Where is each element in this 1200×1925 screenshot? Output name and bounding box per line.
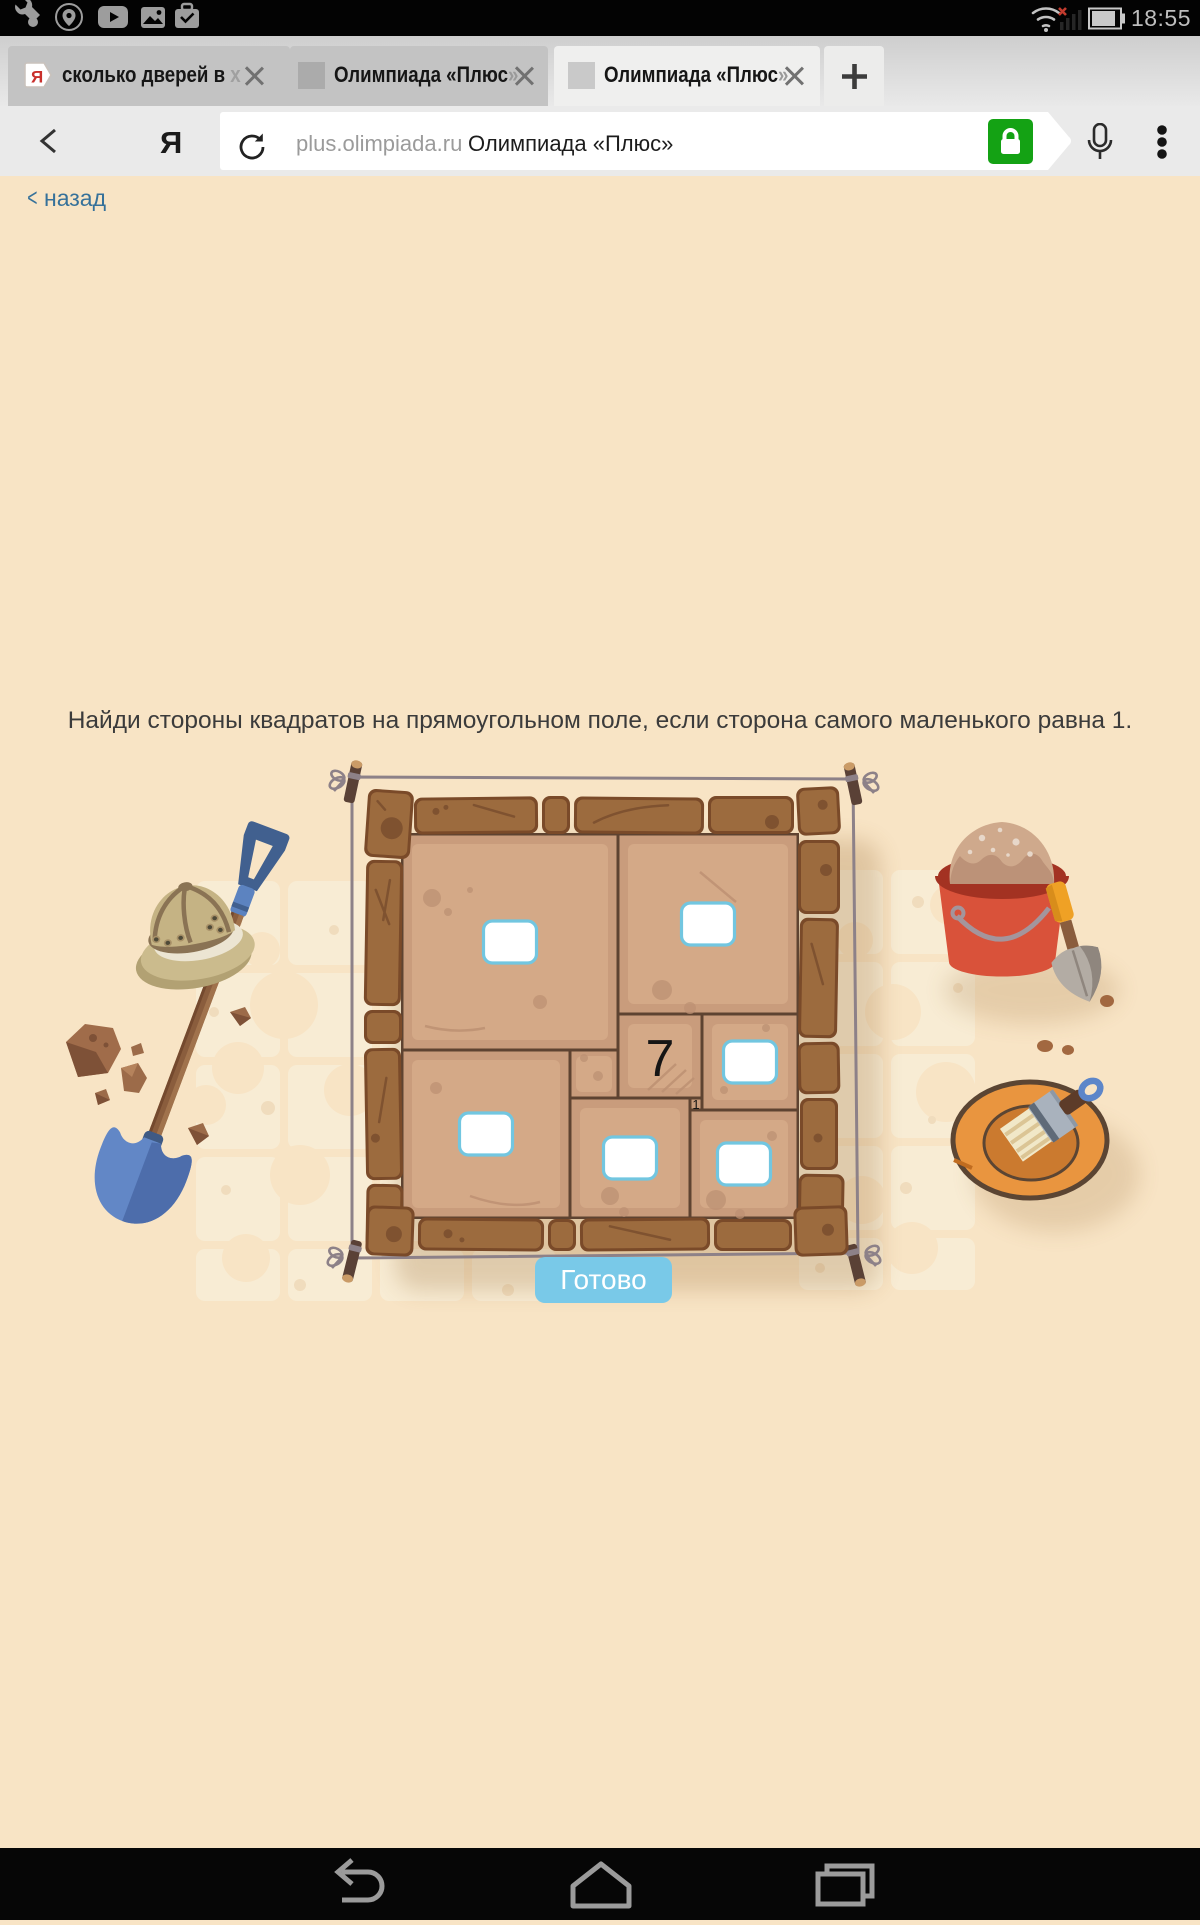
svg-text:Я: Я <box>31 68 43 87</box>
svg-text:7: 7 <box>646 1030 675 1088</box>
svg-text:1: 1 <box>692 1097 699 1112</box>
